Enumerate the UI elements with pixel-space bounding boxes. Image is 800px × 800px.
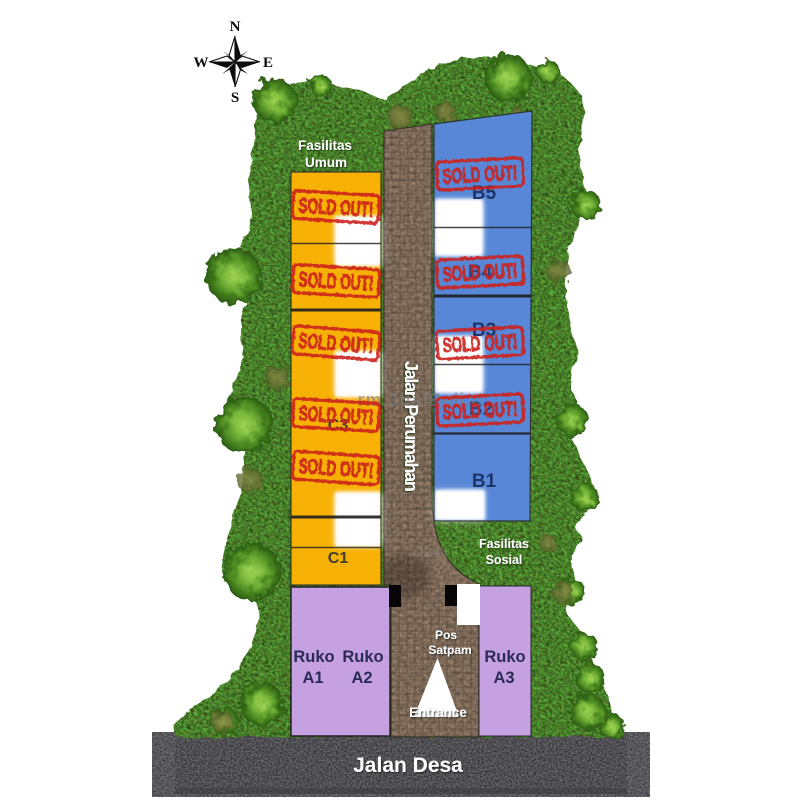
svg-text:S: S bbox=[231, 90, 239, 106]
svg-text:C1: C1 bbox=[328, 550, 349, 567]
svg-text:SOLD OUT!: SOLD OUT! bbox=[442, 398, 518, 425]
svg-text:Ruko: Ruko bbox=[293, 648, 334, 666]
svg-text:N: N bbox=[230, 19, 241, 35]
svg-text:A3: A3 bbox=[493, 669, 514, 687]
svg-text:Sosial: Sosial bbox=[486, 553, 523, 567]
svg-text:A2: A2 bbox=[351, 669, 372, 687]
svg-text:Entrance: Entrance bbox=[409, 705, 467, 720]
svg-text:A1: A1 bbox=[302, 669, 323, 687]
svg-text:SOLD OUT!: SOLD OUT! bbox=[442, 162, 518, 189]
svg-text:Jalan Perumahan: Jalan Perumahan bbox=[401, 361, 421, 491]
svg-text:SOLD OUT!: SOLD OUT! bbox=[298, 402, 374, 430]
svg-text:SOLD OUT!: SOLD OUT! bbox=[442, 260, 518, 287]
svg-text:Ruko: Ruko bbox=[342, 648, 383, 666]
svg-text:B1: B1 bbox=[472, 471, 497, 492]
svg-text:Fasilitas: Fasilitas bbox=[479, 537, 529, 551]
svg-text:E: E bbox=[263, 55, 273, 71]
svg-text:W: W bbox=[194, 55, 209, 71]
svg-text:Pos: Pos bbox=[435, 628, 457, 642]
svg-text:SOLD OUT!: SOLD OUT! bbox=[298, 194, 374, 222]
svg-text:SOLD OUT!: SOLD OUT! bbox=[442, 331, 518, 358]
svg-text:Satpam: Satpam bbox=[428, 643, 471, 657]
svg-text:Ruko: Ruko bbox=[484, 648, 525, 666]
svg-text:Umum: Umum bbox=[305, 155, 347, 170]
svg-text:alBeli: alBeli bbox=[413, 545, 448, 560]
svg-text:Jalan Desa: Jalan Desa bbox=[353, 754, 463, 777]
svg-text:Fasilitas: Fasilitas bbox=[298, 138, 352, 153]
svg-text:SOLD OUT!: SOLD OUT! bbox=[298, 268, 374, 296]
